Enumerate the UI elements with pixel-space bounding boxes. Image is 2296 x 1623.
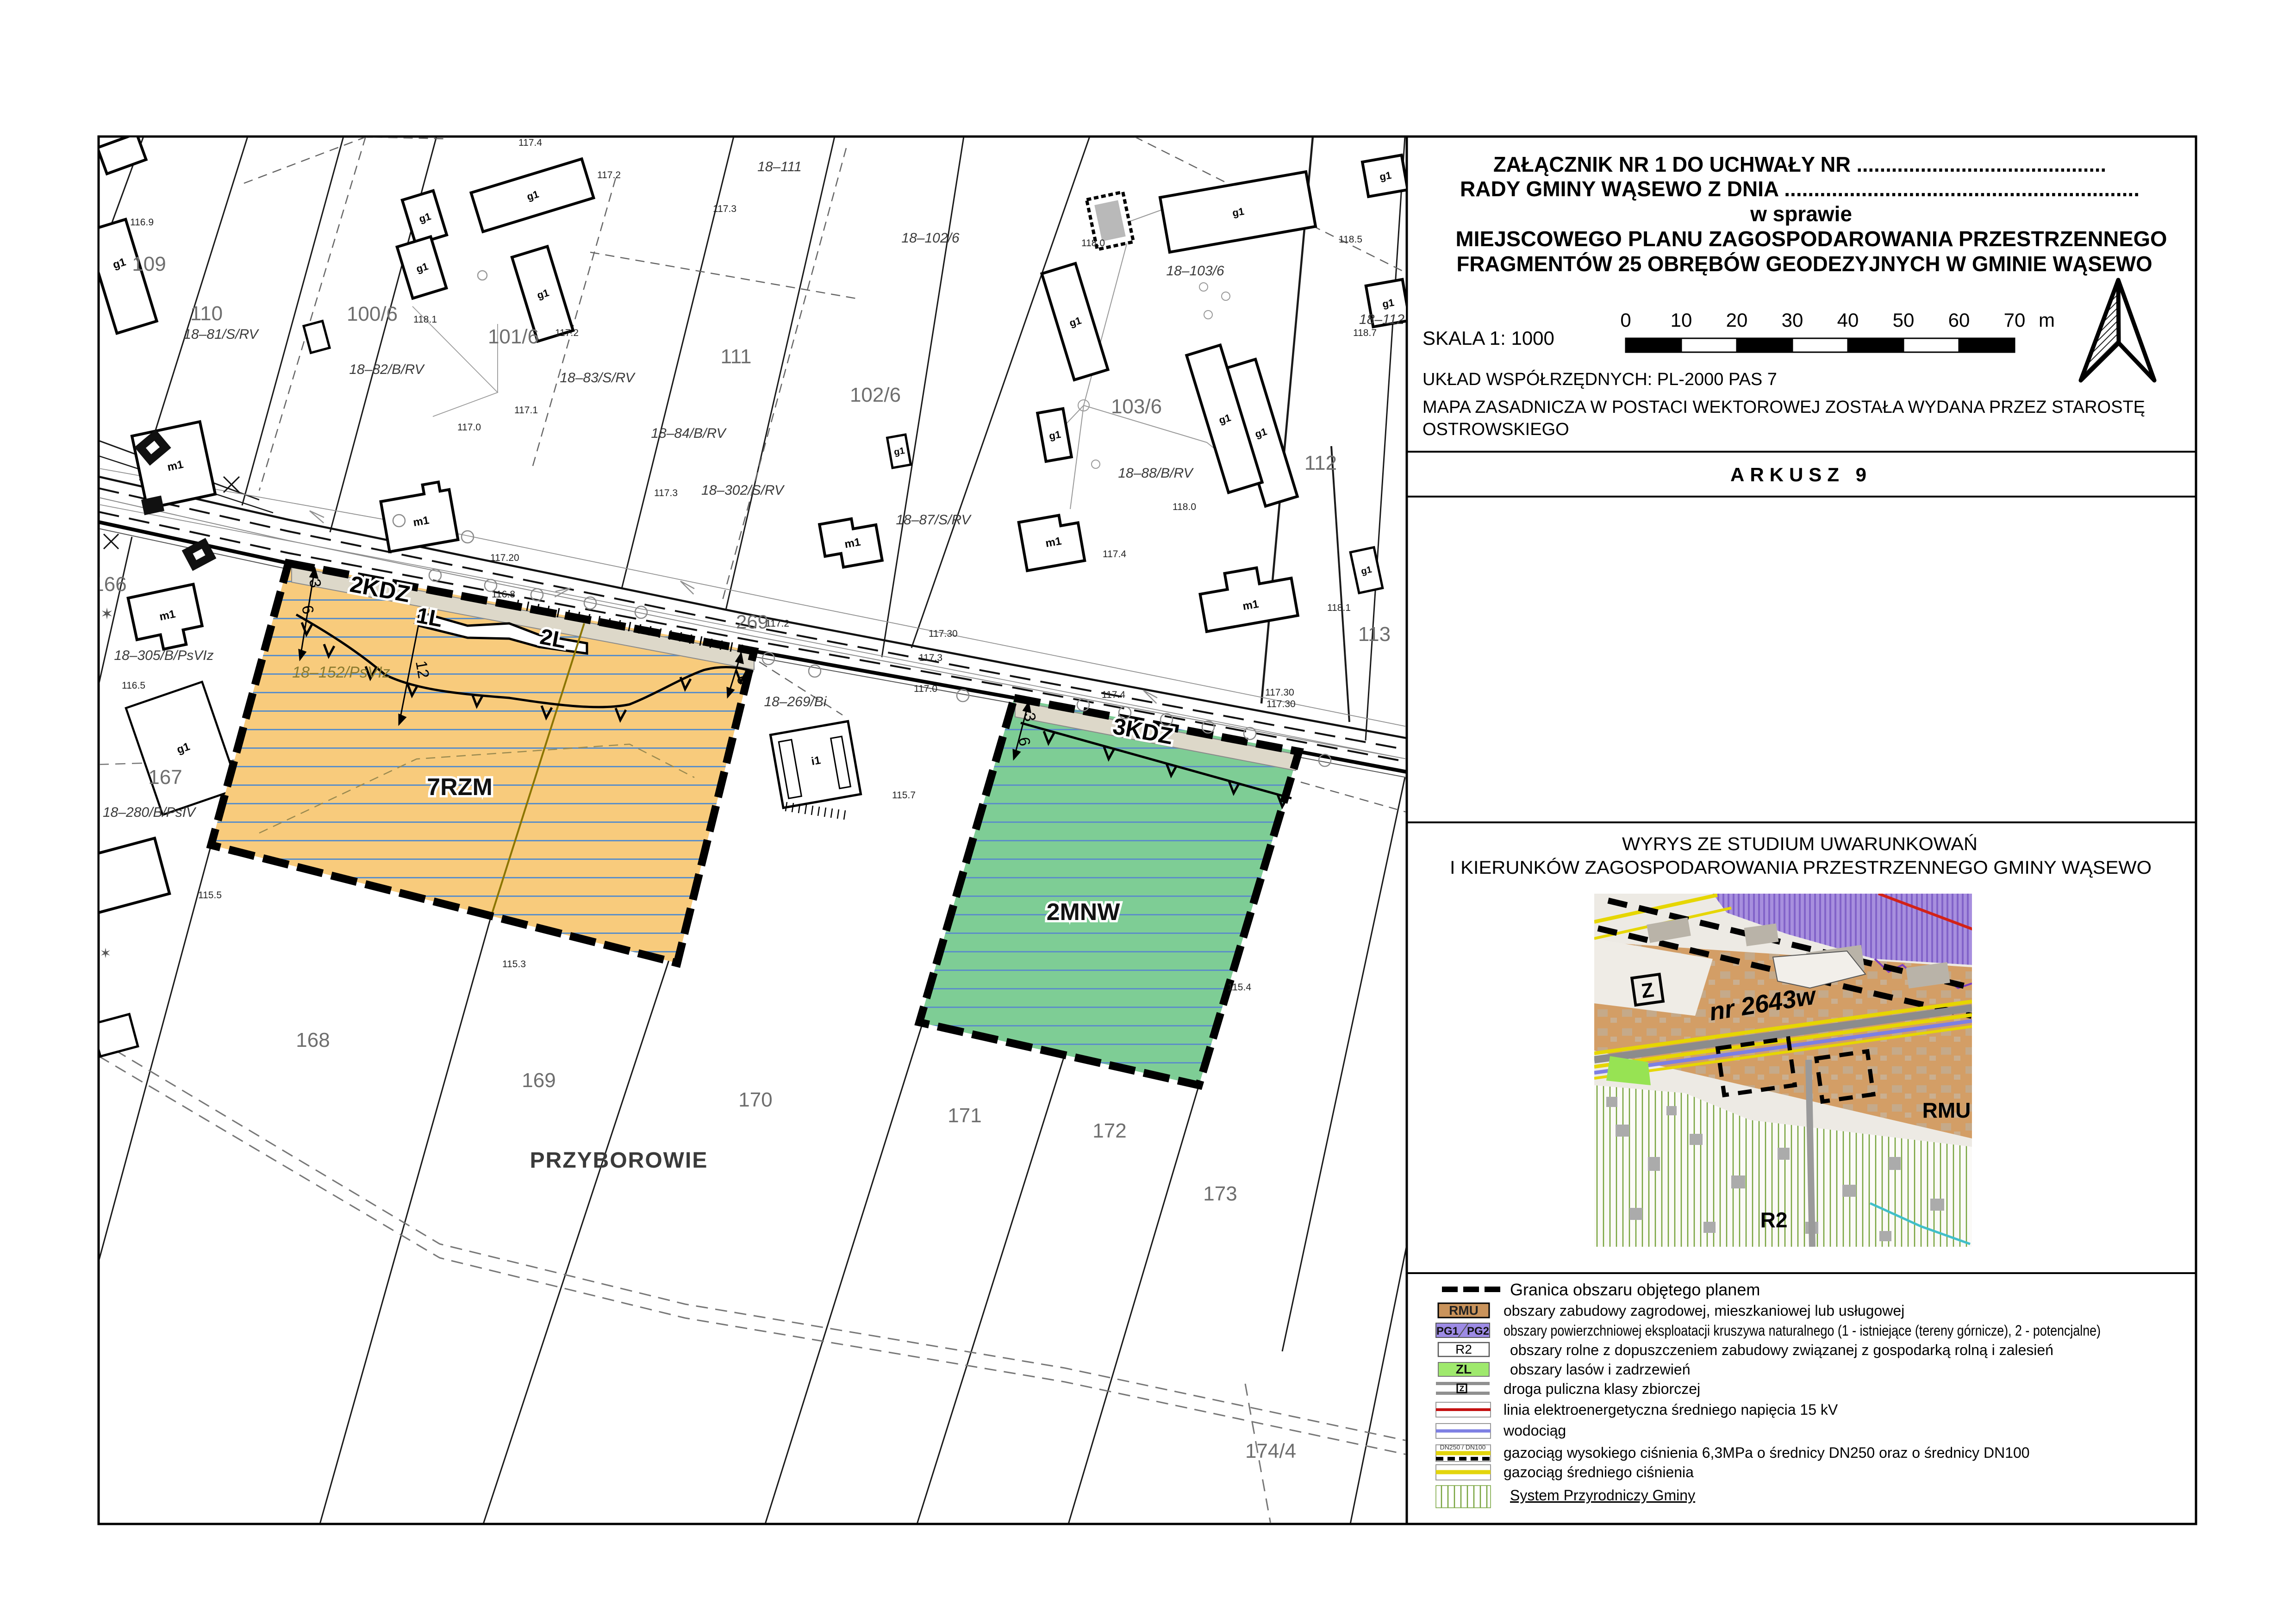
svg-text:115.4: 115.4: [1228, 982, 1251, 993]
svg-text:Granica obszaru objętego plane: Granica obszaru objętego planem: [1510, 1280, 1760, 1299]
svg-text:18–81/S/RV: 18–81/S/RV: [183, 327, 259, 342]
svg-text:117.3: 117.3: [654, 488, 678, 498]
svg-text:117.20: 117.20: [490, 553, 519, 563]
svg-text:RADY GMINY WĄSEWO Z DNIA .....: RADY GMINY WĄSEWO Z DNIA ...............…: [1460, 177, 2140, 201]
svg-text:18–82/B/RV: 18–82/B/RV: [349, 362, 425, 377]
svg-text:✶: ✶: [100, 605, 114, 623]
svg-text:18–102/6: 18–102/6: [901, 230, 959, 246]
svg-text:117.2: 117.2: [555, 328, 579, 338]
svg-text:117.30: 117.30: [929, 628, 958, 639]
svg-text:obszary rolne z dopuszczeniem: obszary rolne z dopuszczeniem zabudowy z…: [1510, 1342, 2053, 1358]
svg-text:7RZM: 7RZM: [427, 774, 493, 801]
svg-text:PRZYBOROWIE: PRZYBOROWIE: [530, 1148, 708, 1173]
svg-text:WYRYS ZE STUDIUM UWARUNKOWAŃ: WYRYS ZE STUDIUM UWARUNKOWAŃ: [1622, 833, 1978, 854]
svg-text:116.9: 116.9: [130, 217, 154, 228]
svg-text:0: 0: [1620, 309, 1631, 331]
svg-text:R2: R2: [1455, 1342, 1472, 1356]
svg-text:40: 40: [1837, 309, 1859, 331]
svg-text:1L: 1L: [414, 603, 444, 632]
svg-text:60: 60: [1948, 309, 1970, 331]
svg-text:gazociąg średniego ciśnienia: gazociąg średniego ciśnienia: [1504, 1464, 1694, 1480]
svg-text:12: 12: [412, 659, 432, 680]
svg-text:113: 113: [1358, 623, 1391, 646]
svg-text:117.2: 117.2: [597, 170, 621, 180]
svg-text:18–302/S/RV: 18–302/S/RV: [701, 483, 785, 498]
svg-text:117.30: 117.30: [1267, 699, 1296, 709]
svg-text:R2: R2: [1760, 1208, 1788, 1232]
svg-text:30: 30: [1782, 309, 1803, 331]
svg-text:118.7: 118.7: [1353, 328, 1377, 338]
svg-text:10: 10: [1671, 309, 1692, 331]
svg-text:2L: 2L: [538, 624, 568, 653]
svg-text:PG1: PG1: [1436, 1325, 1459, 1337]
svg-text:MIEJSCOWEGO PLANU ZAGOSPODAROW: MIEJSCOWEGO PLANU ZAGOSPODAROWANIA PRZES…: [1456, 227, 2167, 251]
svg-text:g1: g1: [1048, 429, 1062, 442]
svg-text:115.3: 115.3: [502, 959, 526, 970]
svg-text:18–112: 18–112: [1359, 312, 1404, 327]
svg-text:172: 172: [1092, 1119, 1126, 1142]
svg-text:167: 167: [148, 766, 182, 789]
svg-text:111: 111: [721, 345, 752, 368]
svg-text:I KIERUNKÓW ZAGOSPODAROWANIA P: I KIERUNKÓW ZAGOSPODAROWANIA PRZESTRZENN…: [1450, 857, 2152, 878]
svg-text:116.8: 116.8: [492, 589, 515, 600]
svg-text:ZL: ZL: [1456, 1362, 1472, 1376]
svg-text:18–280/B/PsIV: 18–280/B/PsIV: [103, 805, 197, 820]
svg-text:System Przyrodniczy Gminy: System Przyrodniczy Gminy: [1510, 1487, 1695, 1504]
svg-text:118.1: 118.1: [413, 314, 437, 325]
svg-text:117.4: 117.4: [1103, 549, 1126, 560]
svg-text:MAPA ZASADNICZA W POSTACI WEKT: MAPA ZASADNICZA W POSTACI WEKTOROWEJ ZOS…: [1423, 398, 2145, 417]
svg-text:FRAGMENTÓW 25 OBRĘBÓW GEODEZYJ: FRAGMENTÓW 25 OBRĘBÓW GEODEZYJNYCH W GMI…: [1457, 252, 2152, 276]
svg-text:18–84/B/RV: 18–84/B/RV: [651, 426, 727, 441]
svg-text:obszary zabudowy zagrodowej, m: obszary zabudowy zagrodowej, mieszkaniow…: [1504, 1302, 1904, 1319]
svg-text:117.3: 117.3: [713, 204, 736, 214]
svg-text:droga puliczna klasy zbiorczej: droga puliczna klasy zbiorczej: [1504, 1380, 1700, 1397]
svg-text:102/6: 102/6: [850, 384, 901, 406]
svg-text:173: 173: [1203, 1182, 1237, 1205]
svg-text:ARKUSZ 9: ARKUSZ 9: [1730, 464, 1872, 485]
svg-text:100/6: 100/6: [347, 303, 398, 325]
svg-text:117.4: 117.4: [518, 137, 542, 148]
svg-text:117.30: 117.30: [1265, 687, 1294, 698]
svg-text:171: 171: [948, 1104, 981, 1127]
svg-text:18–269/Bi: 18–269/Bi: [764, 694, 827, 709]
svg-text:169: 169: [522, 1069, 555, 1092]
svg-text:118.0: 118.0: [1081, 238, 1105, 249]
svg-text:18–103/6: 18–103/6: [1166, 263, 1224, 279]
svg-text:PG2: PG2: [1467, 1325, 1489, 1337]
svg-text:118.1: 118.1: [1327, 603, 1351, 613]
svg-text:103/6: 103/6: [1111, 395, 1162, 418]
svg-text:g1: g1: [1379, 169, 1392, 183]
svg-text:117.1: 117.1: [514, 405, 538, 416]
svg-text:118.5: 118.5: [1339, 234, 1362, 245]
svg-text:gazociąg wysokiego ciśnienia 6: gazociąg wysokiego ciśnienia 6,3MPa o śr…: [1504, 1444, 2030, 1461]
svg-text:g1: g1: [893, 446, 905, 458]
svg-text:OSTROWSKIEGO: OSTROWSKIEGO: [1423, 420, 1569, 439]
svg-text:DN250 / DN100: DN250 / DN100: [1440, 1443, 1486, 1451]
svg-text:117.2: 117.2: [766, 618, 789, 629]
svg-text:18–87/S/RV: 18–87/S/RV: [896, 512, 972, 528]
svg-text:2MNW: 2MNW: [1047, 899, 1121, 926]
svg-text:g1: g1: [1381, 297, 1395, 310]
svg-text:118.0: 118.0: [1173, 502, 1196, 512]
svg-text:obszary powierzchniowej eksplo: obszary powierzchniowej eksploatacji kru…: [1504, 1322, 2101, 1339]
svg-text:RMU: RMU: [1922, 1098, 1971, 1122]
svg-text:174/4: 174/4: [1245, 1440, 1296, 1462]
svg-text:112: 112: [1304, 452, 1337, 474]
svg-text:ZAŁĄCZNIK NR 1 DO UCHWAŁY NR .: ZAŁĄCZNIK NR 1 DO UCHWAŁY NR ...........…: [1493, 152, 2106, 176]
svg-text:m: m: [2039, 309, 2055, 331]
svg-text:101/6: 101/6: [488, 325, 539, 348]
svg-text:RMU: RMU: [1449, 1303, 1479, 1318]
svg-text:269: 269: [736, 611, 768, 633]
svg-text:115.5: 115.5: [198, 890, 222, 901]
svg-text:20: 20: [1726, 309, 1748, 331]
svg-text:170: 170: [738, 1088, 772, 1111]
svg-text:18–152/PsVIz: 18–152/PsVIz: [292, 664, 390, 681]
svg-text:18–83/S/RV: 18–83/S/RV: [560, 370, 636, 386]
svg-text:18–111: 18–111: [757, 159, 802, 174]
svg-text:SKALA 1: 1000: SKALA 1: 1000: [1423, 327, 1554, 349]
svg-text:obszary lasów i zadrzewień: obszary lasów i zadrzewień: [1510, 1361, 1691, 1378]
svg-text:wodociąg: wodociąg: [1503, 1422, 1566, 1439]
svg-text:117.3: 117.3: [919, 653, 942, 663]
svg-text:117.0: 117.0: [914, 684, 937, 694]
svg-text:116.5: 116.5: [122, 680, 145, 691]
svg-text:50: 50: [1893, 309, 1915, 331]
svg-text:UKŁAD WSPÓŁRZĘDNYCH: PL-2000 P: UKŁAD WSPÓŁRZĘDNYCH: PL-2000 PAS 7: [1423, 369, 1777, 389]
svg-text:110: 110: [190, 302, 223, 325]
svg-text:w sprawie: w sprawie: [1750, 202, 1852, 226]
svg-text:linia elektroenergetyczna śred: linia elektroenergetyczna średniego napi…: [1504, 1401, 1838, 1418]
svg-text:Z: Z: [1460, 1384, 1464, 1393]
svg-text:115.7: 115.7: [892, 790, 916, 801]
svg-text:117.0: 117.0: [457, 422, 481, 433]
svg-text:70: 70: [2004, 309, 2026, 331]
svg-text:g1: g1: [1231, 205, 1245, 219]
svg-text:117.4: 117.4: [1102, 690, 1125, 700]
svg-text:18–305/B/PsVIz: 18–305/B/PsVIz: [114, 648, 213, 663]
svg-text:✶: ✶: [100, 946, 111, 961]
svg-text:109: 109: [132, 253, 166, 275]
svg-text:168: 168: [296, 1029, 330, 1051]
svg-text:18–88/B/RV: 18–88/B/RV: [1118, 466, 1194, 481]
